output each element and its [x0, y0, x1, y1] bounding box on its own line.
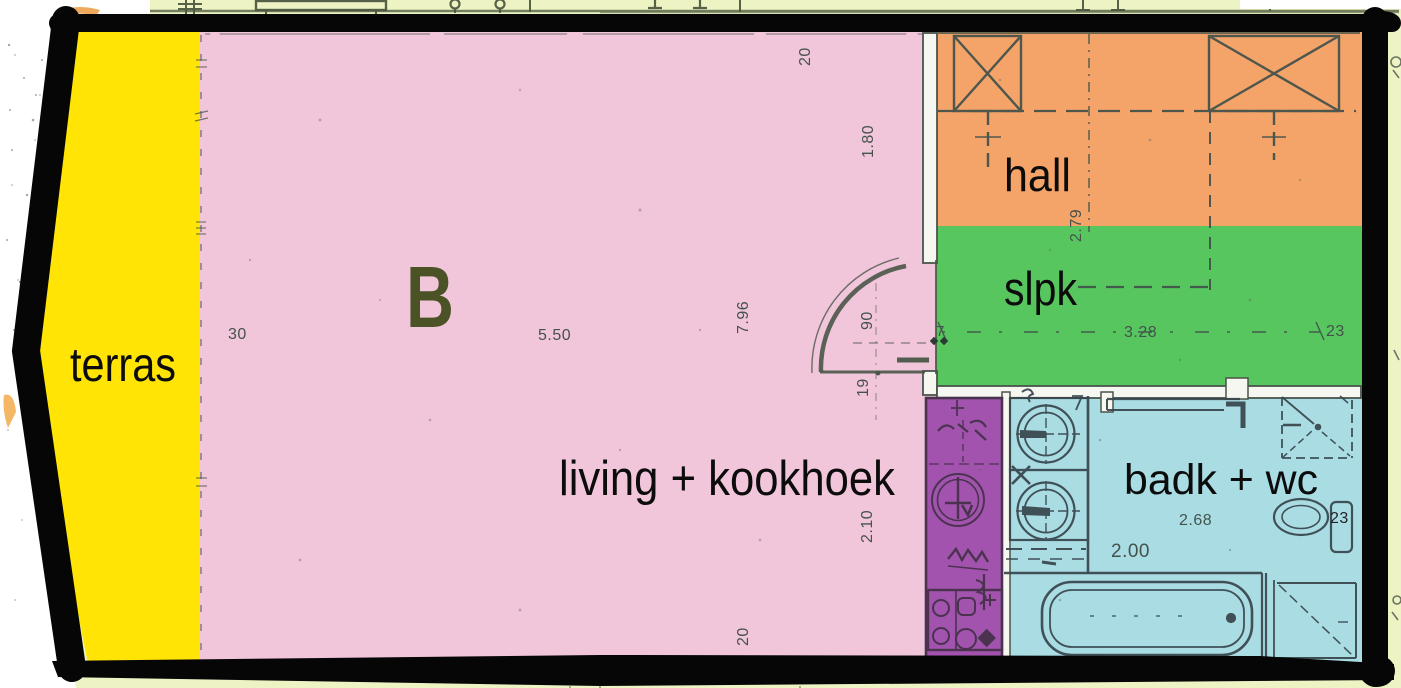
svg-text:1.80: 1.80 — [860, 125, 877, 158]
svg-text:badk + wc: badk + wc — [1124, 456, 1318, 504]
svg-text:slpk: slpk — [1004, 262, 1077, 315]
svg-text:2.68: 2.68 — [1179, 512, 1212, 529]
svg-text:23: 23 — [1330, 510, 1349, 527]
svg-text:7: 7 — [936, 323, 945, 340]
svg-text:30: 30 — [228, 326, 247, 343]
svg-text:living + kookhoek: living + kookhoek — [559, 452, 895, 506]
svg-text:terras: terras — [70, 339, 176, 392]
svg-text:3.28: 3.28 — [1124, 324, 1157, 341]
svg-text:5.50: 5.50 — [538, 327, 571, 344]
svg-text:2.00: 2.00 — [1111, 541, 1150, 562]
svg-text:19: 19 — [855, 378, 872, 397]
svg-text:23: 23 — [1326, 323, 1345, 340]
svg-text:B: B — [406, 249, 454, 346]
svg-text:90: 90 — [859, 311, 876, 330]
svg-text:hall: hall — [1004, 149, 1071, 201]
svg-text:2.10: 2.10 — [859, 510, 876, 543]
svg-text:7.96: 7.96 — [735, 301, 752, 334]
svg-text:2.79: 2.79 — [1068, 209, 1085, 242]
svg-text:20: 20 — [797, 47, 814, 66]
svg-text:20: 20 — [735, 627, 752, 646]
